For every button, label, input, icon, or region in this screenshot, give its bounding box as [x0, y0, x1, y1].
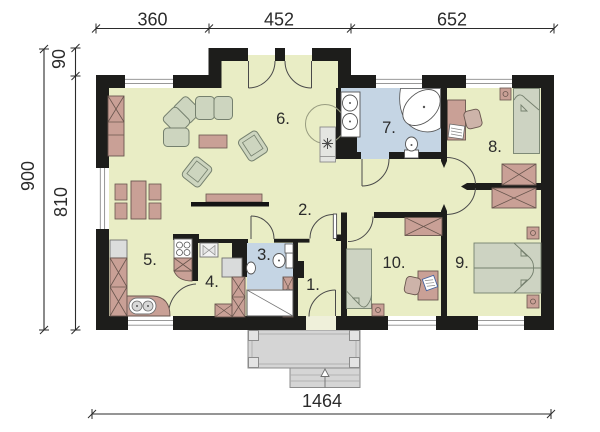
svg-text:10.: 10. [383, 254, 406, 272]
svg-text:8.: 8. [488, 138, 502, 156]
svg-text:900: 900 [18, 161, 38, 191]
svg-text:452: 452 [264, 10, 294, 30]
svg-text:360: 360 [137, 10, 167, 30]
svg-text:1464: 1464 [302, 391, 342, 411]
svg-text:5.: 5. [143, 251, 157, 269]
svg-text:1.: 1. [306, 276, 320, 294]
svg-text:9.: 9. [455, 254, 469, 272]
svg-text:810: 810 [51, 187, 71, 217]
svg-text:90: 90 [49, 49, 69, 69]
svg-text:7.: 7. [382, 119, 396, 137]
svg-text:2.: 2. [298, 201, 312, 219]
svg-text:652: 652 [437, 10, 467, 30]
svg-text:6.: 6. [276, 110, 290, 128]
svg-text:3.: 3. [257, 246, 271, 264]
svg-text:4.: 4. [205, 273, 219, 291]
